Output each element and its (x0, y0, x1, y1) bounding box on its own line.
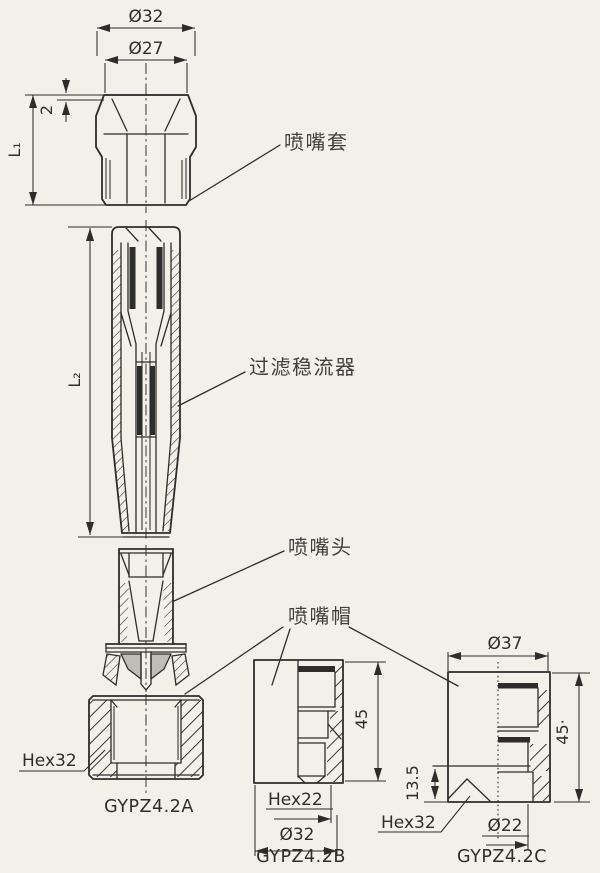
cap-b-outline (254, 660, 343, 783)
leader-sleeve (189, 145, 280, 201)
dim-cap-b-hex: Hex22 (268, 790, 323, 810)
leader-cap-c (349, 627, 458, 686)
dim-cap-c-hex-height: 13.5 (403, 765, 422, 801)
leader-head (174, 551, 284, 601)
dim-cap-b-outer-diameter: Ø32 (279, 825, 314, 845)
model-cap-b: GYPZ4.2B (256, 847, 346, 867)
dim-cap-c-outer-diameter: Ø37 (487, 634, 522, 654)
cap-c-view: Ø37 45· 13.5 Hex32 Ø22 GYPZ4.2C (378, 634, 590, 867)
dim-sleeve-inner-diameter: Ø27 (128, 39, 163, 59)
dim-cap-c-hex: Hex32 (381, 813, 436, 833)
scanned-technical-drawing: Ø32 Ø27 2 L₁ (0, 0, 600, 873)
head-outline (103, 545, 189, 692)
dim-cap-c-inner-diameter: Ø22 (487, 816, 522, 836)
cap-a-outline (89, 694, 203, 794)
cap-a-view: Hex32 GYPZ4.2A (19, 694, 203, 817)
label-cap: 喷嘴帽 (288, 604, 353, 628)
cap-b-view: 45 Hex22 Ø32 GYPZ4.2B (254, 660, 386, 867)
dim-cap-b-height: 45 (352, 709, 371, 729)
filter-outline (112, 220, 180, 541)
dim-sleeve-step: 2 (37, 105, 56, 115)
label-head: 喷嘴头 (288, 535, 353, 559)
model-cap-a: GYPZ4.2A (104, 797, 194, 817)
cap-b-dimensions: 45 Hex22 Ø32 GYPZ4.2B (255, 662, 386, 867)
sleeve-view: Ø32 Ø27 2 L₁ (5, 7, 196, 213)
leader-filter (178, 372, 245, 406)
dim-filter-length: L₂ (65, 372, 84, 387)
nozzle-assembly-drawing: Ø32 Ø27 2 L₁ (0, 0, 600, 873)
dim-cap-c-height: 45· (553, 719, 572, 744)
dim-sleeve-outer-diameter: Ø32 (128, 7, 163, 27)
model-cap-c: GYPZ4.2C (457, 847, 547, 867)
label-sleeve: 喷嘴套 (284, 130, 349, 154)
cap-c-outline (433, 662, 550, 840)
part-labels: 喷嘴套 过滤稳流器 喷嘴头 喷嘴帽 (174, 130, 458, 694)
cap-c-dimensions: Ø37 45· 13.5 Hex32 Ø22 GYPZ4.2C (378, 634, 590, 867)
filter-view: L₂ (65, 220, 180, 541)
dim-cap-a-hex: Hex32 (22, 751, 77, 771)
head-view (103, 545, 189, 692)
sleeve-outline (96, 63, 196, 213)
dim-sleeve-length: L₁ (5, 142, 24, 157)
label-filter: 过滤稳流器 (249, 355, 357, 379)
leader-cap-b (272, 629, 290, 685)
